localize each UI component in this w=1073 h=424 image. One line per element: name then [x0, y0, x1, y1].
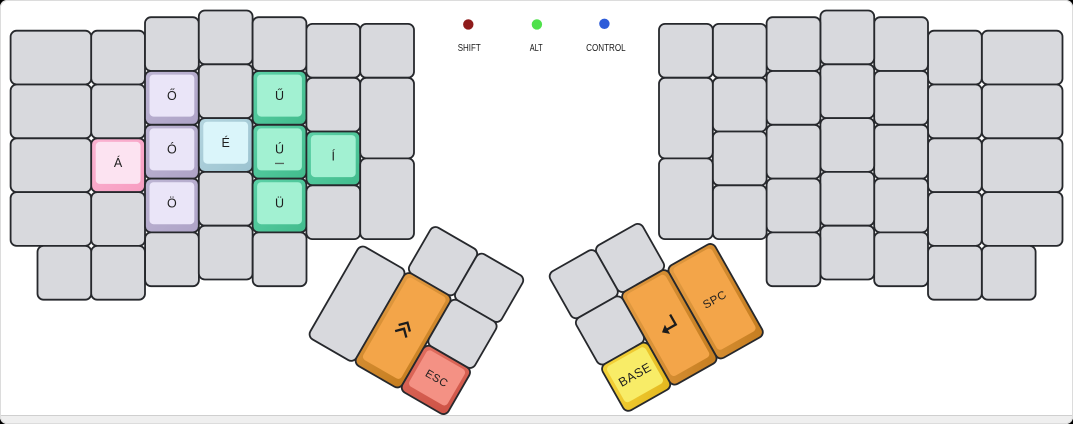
svg-text:Ö: Ö	[167, 196, 177, 210]
svg-text:Ő: Ő	[167, 88, 177, 103]
svg-text:CONTROL: CONTROL	[586, 43, 626, 54]
svg-text:Ú: Ú	[275, 142, 284, 157]
svg-text:Ü: Ü	[275, 196, 284, 210]
svg-text:É: É	[222, 135, 230, 150]
svg-text:Á: Á	[114, 155, 123, 170]
svg-text:Í: Í	[332, 148, 336, 163]
svg-text:SHIFT: SHIFT	[458, 43, 481, 54]
svg-text:Ű: Ű	[275, 88, 284, 103]
svg-text:ALT: ALT	[530, 43, 543, 54]
svg-text:Ó: Ó	[167, 142, 177, 157]
